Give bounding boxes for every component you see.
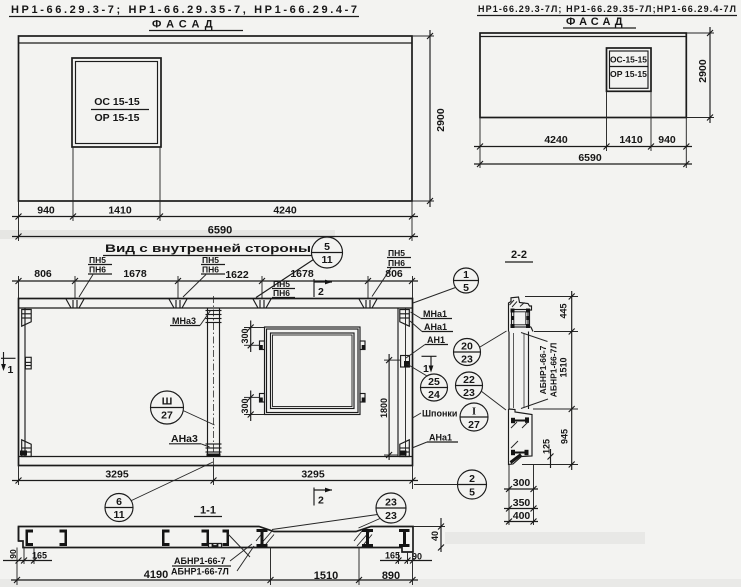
svg-text:3295: 3295 bbox=[105, 469, 129, 481]
svg-text:5: 5 bbox=[463, 282, 469, 294]
svg-text:АНа3: АНа3 bbox=[171, 433, 198, 445]
svg-text:АНа1: АНа1 bbox=[424, 322, 447, 332]
svg-text:1678: 1678 bbox=[290, 268, 314, 280]
svg-text:40: 40 bbox=[430, 531, 440, 541]
svg-text:1622: 1622 bbox=[225, 269, 249, 281]
svg-text:20: 20 bbox=[461, 341, 473, 353]
svg-text:4240: 4240 bbox=[273, 205, 297, 217]
svg-text:3295: 3295 bbox=[301, 469, 325, 481]
svg-text:2900: 2900 bbox=[697, 59, 709, 83]
svg-text:400: 400 bbox=[513, 510, 531, 522]
svg-text:11: 11 bbox=[321, 254, 332, 266]
svg-text:24: 24 bbox=[428, 389, 440, 401]
svg-text:5: 5 bbox=[324, 241, 330, 253]
svg-text:165: 165 bbox=[32, 551, 47, 561]
svg-text:МНа1: МНа1 bbox=[423, 309, 447, 319]
svg-text:АБНР1-66-7Л: АБНР1-66-7Л bbox=[549, 343, 559, 398]
svg-text:ПН5: ПН5 bbox=[89, 255, 106, 265]
svg-text:ФАСАД: ФАСАД bbox=[566, 16, 627, 28]
svg-text:2: 2 bbox=[318, 286, 324, 298]
svg-text:22: 22 bbox=[463, 374, 475, 386]
svg-text:2900: 2900 bbox=[435, 108, 447, 132]
svg-text:Шпонки: Шпонки bbox=[422, 409, 457, 419]
svg-text:6590: 6590 bbox=[578, 152, 602, 164]
svg-text:1-1: 1-1 bbox=[200, 505, 216, 517]
svg-text:АНа1: АНа1 bbox=[429, 433, 452, 443]
svg-text:ПН6: ПН6 bbox=[89, 265, 106, 275]
svg-text:I: I bbox=[472, 407, 476, 418]
svg-text:300: 300 bbox=[513, 477, 531, 489]
svg-text:23: 23 bbox=[385, 497, 397, 509]
svg-text:6590: 6590 bbox=[208, 225, 232, 237]
svg-text:1: 1 bbox=[423, 363, 429, 375]
svg-text:300: 300 bbox=[240, 398, 250, 413]
svg-text:23: 23 bbox=[461, 354, 473, 366]
svg-text:ПН6: ПН6 bbox=[388, 258, 405, 268]
svg-text:90: 90 bbox=[412, 552, 422, 562]
svg-text:300: 300 bbox=[240, 328, 250, 343]
svg-text:ПН5: ПН5 bbox=[202, 255, 219, 265]
svg-text:1410: 1410 bbox=[619, 134, 643, 146]
svg-text:350: 350 bbox=[513, 497, 531, 509]
svg-text:ОС 15-15: ОС 15-15 bbox=[94, 96, 140, 108]
svg-text:806: 806 bbox=[385, 268, 403, 280]
svg-text:ОР 15-15: ОР 15-15 bbox=[610, 69, 647, 79]
svg-text:МНа3: МНа3 bbox=[172, 316, 196, 326]
svg-text:5: 5 bbox=[469, 487, 475, 499]
svg-text:165: 165 bbox=[385, 551, 400, 561]
svg-text:27: 27 bbox=[161, 410, 173, 422]
svg-text:890: 890 bbox=[382, 570, 400, 582]
svg-text:2-2: 2-2 bbox=[511, 249, 527, 261]
svg-text:ПН6: ПН6 bbox=[202, 265, 219, 275]
svg-text:ПН6: ПН6 bbox=[273, 288, 290, 298]
svg-text:23: 23 bbox=[463, 387, 475, 399]
svg-text:25: 25 bbox=[428, 376, 440, 388]
svg-text:1510: 1510 bbox=[559, 357, 569, 377]
svg-text:806: 806 bbox=[34, 268, 52, 280]
svg-text:1510: 1510 bbox=[314, 570, 338, 582]
svg-text:11: 11 bbox=[113, 509, 124, 521]
svg-text:АБНР1-66-7: АБНР1-66-7 bbox=[174, 556, 226, 566]
svg-text:АБНР1-66-7: АБНР1-66-7 bbox=[538, 345, 548, 394]
svg-text:АН1: АН1 bbox=[427, 335, 445, 345]
svg-text:4190: 4190 bbox=[144, 569, 168, 581]
svg-text:2: 2 bbox=[318, 495, 324, 507]
svg-text:940: 940 bbox=[37, 205, 55, 217]
svg-text:445: 445 bbox=[559, 303, 569, 318]
svg-text:Вид с внутренней стороны: Вид с внутренней стороны bbox=[105, 243, 311, 255]
svg-text:27: 27 bbox=[468, 419, 480, 431]
svg-text:ОР 15-15: ОР 15-15 bbox=[95, 112, 140, 124]
svg-text:1: 1 bbox=[463, 269, 469, 281]
svg-text:945: 945 bbox=[560, 429, 570, 444]
svg-text:23: 23 bbox=[385, 510, 397, 522]
svg-text:2: 2 bbox=[469, 473, 475, 485]
svg-text:НР1-66.29.3-7Л; НР1-66.29.35-7: НР1-66.29.3-7Л; НР1-66.29.35-7Л;НР1-66.2… bbox=[478, 4, 736, 14]
svg-text:125: 125 bbox=[542, 439, 552, 454]
svg-text:ОС-15-15: ОС-15-15 bbox=[610, 55, 647, 65]
svg-text:90: 90 bbox=[8, 549, 18, 559]
svg-text:940: 940 bbox=[658, 134, 676, 146]
svg-text:1: 1 bbox=[8, 364, 14, 376]
svg-text:4240: 4240 bbox=[544, 134, 568, 146]
svg-text:6: 6 bbox=[116, 496, 122, 508]
svg-text:1678: 1678 bbox=[123, 268, 147, 280]
svg-text:АБНР1-66-7Л: АБНР1-66-7Л bbox=[171, 567, 229, 577]
svg-text:ФАСАД: ФАСАД bbox=[152, 19, 218, 31]
svg-text:ПН5: ПН5 bbox=[388, 248, 405, 258]
svg-text:Ш: Ш bbox=[162, 396, 173, 408]
svg-text:1410: 1410 bbox=[108, 205, 132, 217]
svg-text:1800: 1800 bbox=[379, 398, 389, 418]
